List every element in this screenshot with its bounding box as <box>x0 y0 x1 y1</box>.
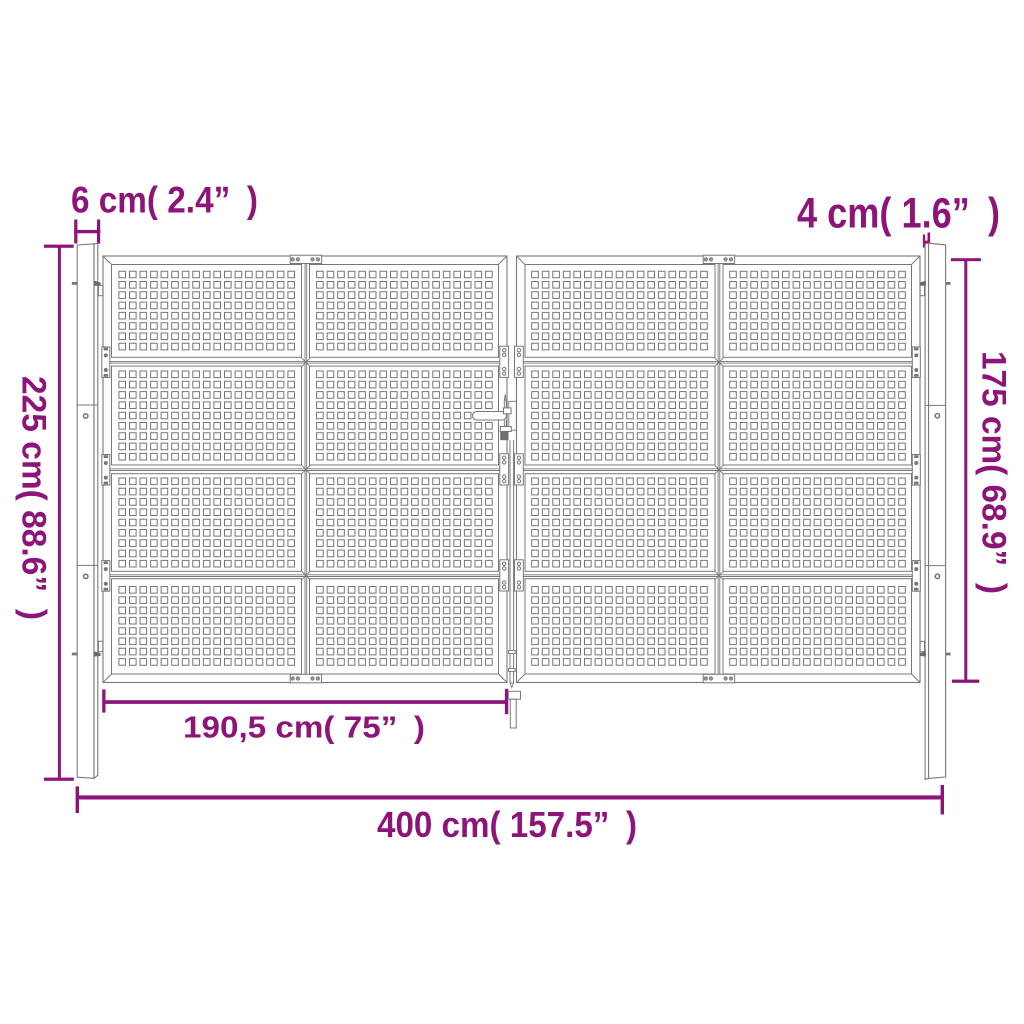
svg-text:4 cm( 1.6” ): 4 cm( 1.6” ) <box>797 190 1000 238</box>
svg-text:225 cm( 88.6” ): 225 cm( 88.6” ) <box>15 376 53 620</box>
svg-text:190,5 cm( 75” ): 190,5 cm( 75” ) <box>183 711 425 745</box>
svg-text:6 cm( 2.4” ): 6 cm( 2.4” ) <box>71 179 258 221</box>
svg-text:175 cm( 68.9” ): 175 cm( 68.9” ) <box>975 351 1013 594</box>
svg-text:400 cm( 157.5” ): 400 cm( 157.5” ) <box>377 804 637 845</box>
